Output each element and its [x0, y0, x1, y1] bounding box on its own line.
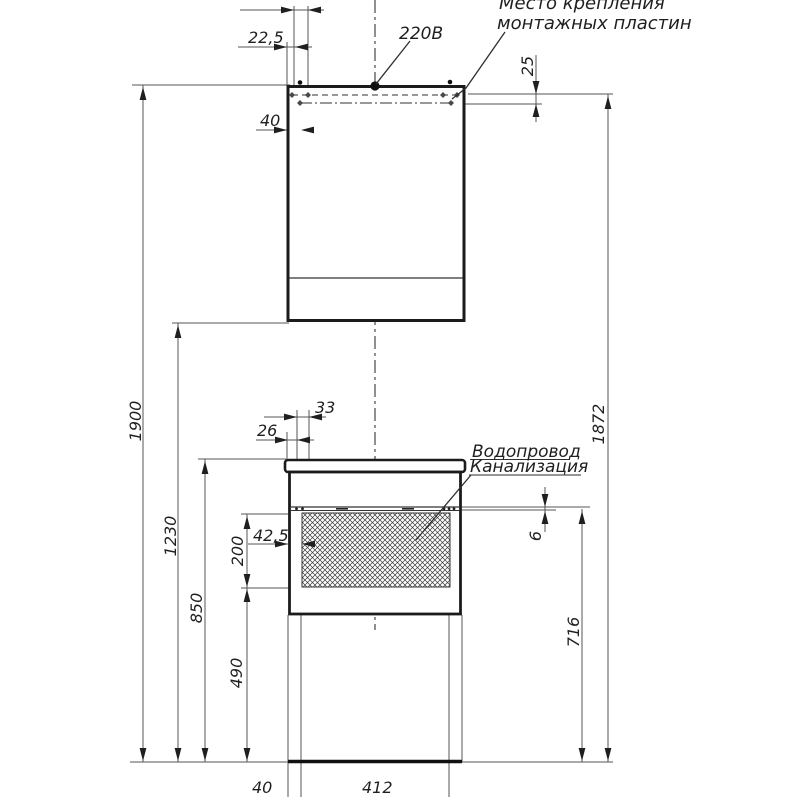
power-point-dot [370, 81, 379, 90]
screw-dot-right [448, 80, 453, 85]
upper-cabinet [288, 80, 464, 321]
mounting-note-line1: Место крепления [499, 0, 665, 14]
dim-42-5-label: 42,5 [253, 526, 289, 545]
screw-dot-left [298, 80, 303, 85]
dim-6-label: 6 [526, 531, 545, 541]
dim-26-label: 26 [257, 421, 277, 440]
mounting-note-line2: монтажных пластин [497, 13, 692, 34]
countertop [285, 460, 465, 472]
dim-850-label: 850 [187, 593, 206, 624]
dim-40-top-label: 40 [260, 111, 280, 130]
lower-cabinet [285, 460, 465, 762]
power-leader [376, 41, 410, 84]
dim-1230-label: 1230 [161, 516, 180, 557]
dim-40-bottom-label: 40 [252, 778, 272, 797]
dim-22-5-label: 22,5 [248, 28, 284, 47]
dim-490-label: 490 [227, 658, 246, 689]
dim-716-label: 716 [564, 617, 583, 648]
sewerage-label: Канализация [470, 457, 588, 477]
technical-drawing: 22,5 40 220В Место крепления монтажных п… [0, 0, 800, 800]
dim-412-label: 412 [362, 778, 393, 797]
dim-33-label: 33 [315, 398, 335, 417]
pipe-opening-hatch [302, 513, 450, 587]
drawing-page: 22,5 40 220В Место крепления монтажных п… [0, 0, 800, 800]
dim-1872-label: 1872 [589, 404, 608, 445]
dim-200-label: 200 [228, 536, 247, 567]
dim-25-label: 25 [518, 56, 537, 76]
dim-1900-label: 1900 [126, 401, 145, 442]
power-label: 220В [399, 24, 443, 44]
